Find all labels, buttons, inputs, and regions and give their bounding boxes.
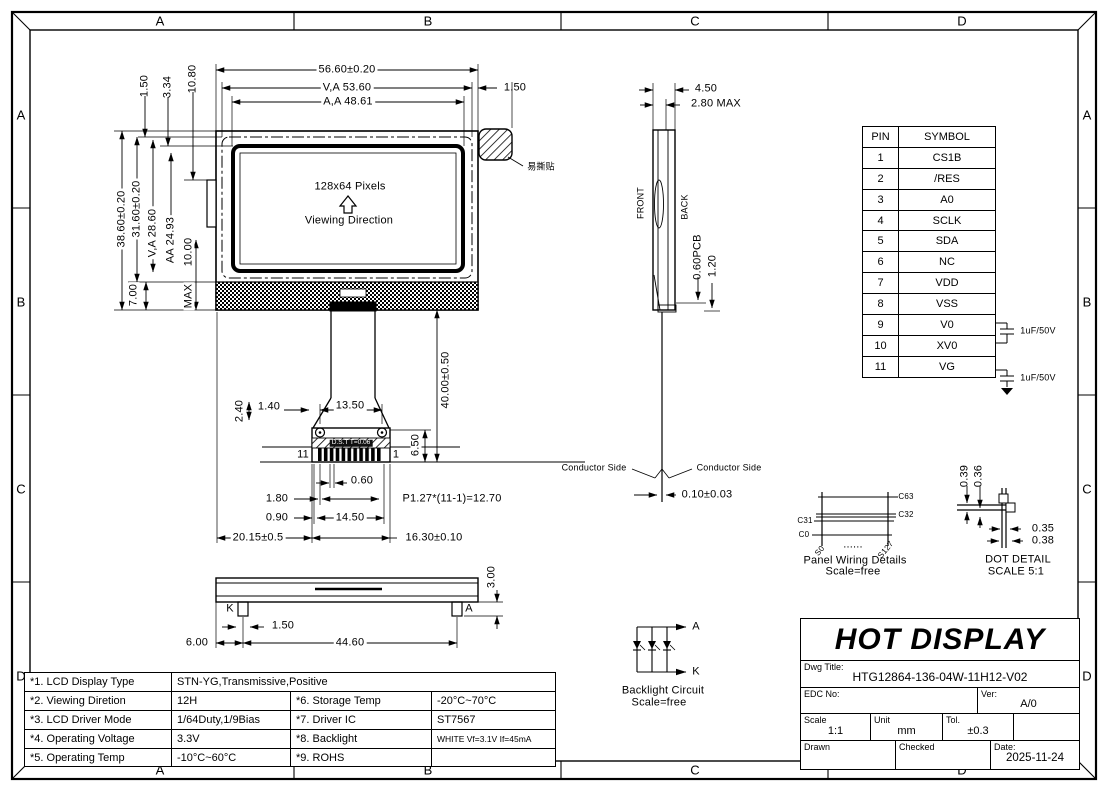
dim-aa-height: AA 24.93 xyxy=(166,215,177,265)
date-cell: Date: 2025-11-24 xyxy=(991,741,1079,769)
dwg-title-value: HTG12864-136-04W-11H12-V02 xyxy=(801,670,1079,684)
dim-pad-1-50: 1.50 xyxy=(272,621,294,632)
display-pixels-label: 128x64 Pixels xyxy=(314,182,385,193)
wiring-c32-label: C32 xyxy=(898,511,913,519)
dim-20-15: 20.15±0.5 xyxy=(231,533,286,544)
spec-value: -20°C~70°C xyxy=(432,691,556,710)
dim-1-40: 1.40 xyxy=(258,402,280,413)
spec-label: *6. Storage Temp xyxy=(291,691,432,710)
dim-height-31-60: 31.60±0.20 xyxy=(132,179,143,240)
dim-44-60: 44.60 xyxy=(334,638,367,649)
spec-value: ST7567 xyxy=(432,710,556,729)
date-label: Date: xyxy=(994,742,1016,752)
edc-cell: EDC No: xyxy=(801,688,978,713)
spec-value: STN-YG,Transmissive,Positive xyxy=(172,673,556,692)
spec-value: WHITE Vf=3.1V If=45mA xyxy=(432,729,556,748)
table-row: 9V0 xyxy=(863,315,996,336)
dim-14-50: 14.50 xyxy=(334,513,367,524)
spec-table: *1. LCD Display Type STN-YG,Transmissive… xyxy=(24,672,556,767)
backlight-circuit xyxy=(633,627,686,672)
table-row: 2/RES xyxy=(863,168,996,189)
spec-value xyxy=(432,748,556,767)
wiring-dots: ...... xyxy=(843,540,863,551)
connector-pin-11-label: 11 xyxy=(297,450,309,461)
unit-cell: Unit mm xyxy=(871,714,943,740)
tol-value: ±0.3 xyxy=(943,725,1013,737)
drawn-cell: Drawn xyxy=(801,741,896,769)
dim-top-10-80: 10.80 xyxy=(188,65,199,94)
ver-cell: Ver: A/0 xyxy=(978,688,1079,713)
wiring-c31-label: C31 xyxy=(797,517,812,525)
conductor-side-right-label: Conductor Side xyxy=(697,464,762,473)
dim-16-30: 16.30±0.10 xyxy=(406,533,463,544)
dim-13-50: 13.50 xyxy=(334,401,367,412)
viewing-direction-label: Viewing Direction xyxy=(305,216,393,227)
dot-detail xyxy=(957,486,1023,548)
front-face-label: FRONT xyxy=(637,187,646,219)
pin-table-header-symbol: SYMBOL xyxy=(899,127,996,148)
dot-detail-scale: SCALE 5:1 xyxy=(988,567,1044,578)
edc-label: EDC No: xyxy=(804,689,840,699)
backlight-anode-label: A xyxy=(692,622,700,633)
table-row: 10XV0 xyxy=(863,335,996,356)
side-view-dimensions xyxy=(632,83,720,495)
dot-dim-0-38: 0.38 xyxy=(1032,536,1054,547)
dwg-title-row: Dwg Title: HTG12864-136-04W-11H12-V02 xyxy=(801,661,1079,688)
dim-right-offset: 1.50 xyxy=(504,83,526,94)
dim-0-90: 0.90 xyxy=(266,513,288,524)
dim-6-50: 6.50 xyxy=(411,432,422,458)
zone-col-c-top: C xyxy=(690,15,700,28)
title-block: HOT DISPLAY Dwg Title: HTG12864-136-04W-… xyxy=(800,618,1080,770)
scale-value: 1:1 xyxy=(801,725,870,737)
table-row: 6NC xyxy=(863,252,996,273)
front-view xyxy=(207,129,523,398)
dim-va-height: V,A 28.60 xyxy=(148,207,159,260)
tol-label: Tol. xyxy=(946,715,960,725)
table-row: *4. Operating Voltage3.3V *8. BacklightW… xyxy=(25,729,556,748)
panel-wiring-scale: Scale=free xyxy=(826,567,881,578)
company-name: HOT DISPLAY xyxy=(801,623,1079,657)
spec-label: *7. Driver IC xyxy=(291,710,432,729)
cathode-pad-label: K xyxy=(226,604,234,615)
dim-pcb: 0.60PCB xyxy=(693,234,704,279)
zone-col-b-top: B xyxy=(424,15,433,28)
dim-6-00: 6.00 xyxy=(184,638,210,649)
zone-row-b-left: B xyxy=(17,296,26,309)
backlight-cathode-label: K xyxy=(692,667,700,678)
dim-va-width: V,A 53.60 xyxy=(321,83,374,94)
dim-pitch: P1.27*(11-1)=12.70 xyxy=(402,494,501,505)
bottom-view xyxy=(216,578,478,616)
zone-row-d-right: D xyxy=(1082,670,1092,683)
table-row: 5SDA xyxy=(863,231,996,252)
backlight-circuit-title: Backlight Circuit xyxy=(622,686,704,697)
zone-row-c-right: C xyxy=(1082,483,1092,496)
company-row: HOT DISPLAY xyxy=(801,619,1079,661)
spec-label: *4. Operating Voltage xyxy=(25,729,172,748)
table-row: *1. LCD Display Type STN-YG,Transmissive… xyxy=(25,673,556,692)
spec-label: *5. Operating Temp xyxy=(25,748,172,767)
dim-3-00: 3.00 xyxy=(487,566,498,588)
edc-ver-row: EDC No: Ver: A/0 xyxy=(801,688,1079,714)
pin-table-header-pin: PIN xyxy=(863,127,899,148)
dot-dim-0-39: 0.39 xyxy=(960,465,971,487)
table-row: 11VG xyxy=(863,356,996,377)
stiffener-label: D.S.T T=0.06 xyxy=(330,440,373,447)
capacitor-2-label: 1uF/50V xyxy=(1020,374,1055,383)
scale-cell: Scale 1:1 xyxy=(801,714,871,740)
dim-top-1-50: 1.50 xyxy=(140,75,151,97)
connector-dimensions xyxy=(217,310,437,543)
dim-top-3-34: 3.34 xyxy=(163,76,174,98)
table-row: 4SCLK xyxy=(863,210,996,231)
table-row: 7VDD xyxy=(863,273,996,294)
conductor-side-left-label: Conductor Side xyxy=(562,464,627,473)
dim-max: MAX xyxy=(184,282,195,310)
table-row: *2. Viewing Diretion12H *6. Storage Temp… xyxy=(25,691,556,710)
spec-label: *8. Backlight xyxy=(291,729,432,748)
zone-col-c-bottom: C xyxy=(690,764,700,777)
spec-label: *2. Viewing Diretion xyxy=(25,691,172,710)
zone-row-c-left: C xyxy=(16,483,26,496)
dim-0-60: 0.60 xyxy=(351,476,373,487)
dim-4-50: 4.50 xyxy=(695,84,717,95)
unit-label: Unit xyxy=(874,715,890,725)
drawing-sheet: A B C D A B C D A B C D A B C D 56.60±0.… xyxy=(0,0,1108,791)
drawn-label: Drawn xyxy=(804,742,830,752)
spec-value: -10°C~60°C xyxy=(172,748,291,767)
drawn-checked-date-row: Drawn Checked Date: 2025-11-24 xyxy=(801,741,1079,769)
dim-0-10: 0.10±0.03 xyxy=(682,490,733,501)
wiring-c0-label: C0 xyxy=(799,531,810,539)
zone-col-d-top: D xyxy=(957,15,967,28)
date-value: 2025-11-24 xyxy=(991,752,1079,764)
scale-unit-tol-row: Scale 1:1 Unit mm Tol. ±0.3 xyxy=(801,714,1079,741)
dim-overall-width: 56.60±0.20 xyxy=(317,65,378,76)
spec-value: 12H xyxy=(172,691,291,710)
spec-label: *3. LCD Driver Mode xyxy=(25,710,172,729)
dim-2-80-max: 2.80 MAX xyxy=(691,99,741,110)
table-row: 1CS1B xyxy=(863,147,996,168)
zone-row-b-right: B xyxy=(1083,296,1092,309)
checked-cell: Checked xyxy=(896,741,991,769)
back-face-label: BACK xyxy=(681,194,690,219)
wiring-c63-label: C63 xyxy=(898,493,913,501)
table-row: *5. Operating Temp-10°C~60°C *9. ROHS xyxy=(25,748,556,767)
dot-dim-0-36: 0.36 xyxy=(974,465,985,487)
ver-value: A/0 xyxy=(978,698,1079,710)
connector-pin-1-label: 1 xyxy=(393,450,399,461)
dim-7-00: 7.00 xyxy=(129,282,140,308)
table-row: 3A0 xyxy=(863,189,996,210)
projection-cell xyxy=(1014,714,1079,740)
dim-10-00: 10.00 xyxy=(184,236,195,269)
dim-2-40: 2.40 xyxy=(235,400,246,422)
unit-value: mm xyxy=(871,725,942,737)
anode-pad-label: A xyxy=(465,604,473,615)
zone-col-a-top: A xyxy=(156,15,165,28)
dim-1-80: 1.80 xyxy=(266,494,288,505)
table-row: *3. LCD Driver Mode1/64Duty,1/9Bias *7. … xyxy=(25,710,556,729)
capacitor-1-label: 1uF/50V xyxy=(1020,327,1055,336)
scale-label: Scale xyxy=(804,715,827,725)
zone-row-a-left: A xyxy=(17,109,26,122)
dim-aa-width: A,A 48.61 xyxy=(321,97,375,108)
dot-detail-title: DOT DETAIL xyxy=(985,555,1051,566)
spec-value: 3.3V xyxy=(172,729,291,748)
dim-overall-height: 38.60±0.20 xyxy=(117,189,128,250)
spec-label: *1. LCD Display Type xyxy=(25,673,172,692)
zone-row-a-right: A xyxy=(1083,109,1092,122)
spec-value: 1/64Duty,1/9Bias xyxy=(172,710,291,729)
checked-label: Checked xyxy=(899,742,935,752)
sticker-label: 易撕贴 xyxy=(527,163,555,172)
spec-label: *9. ROHS xyxy=(291,748,432,767)
backlight-circuit-scale: Scale=free xyxy=(632,698,687,709)
dot-dim-0-35: 0.35 xyxy=(1032,524,1054,535)
pin-table: PIN SYMBOL 1CS1B 2/RES 3A0 4SCLK 5SDA 6N… xyxy=(862,126,996,378)
side-view xyxy=(653,130,676,502)
tol-cell: Tol. ±0.3 xyxy=(943,714,1014,740)
dim-40-00: 40.00±0.50 xyxy=(441,350,452,411)
table-row: 8VSS xyxy=(863,294,996,315)
dim-1-20: 1.20 xyxy=(708,255,719,277)
